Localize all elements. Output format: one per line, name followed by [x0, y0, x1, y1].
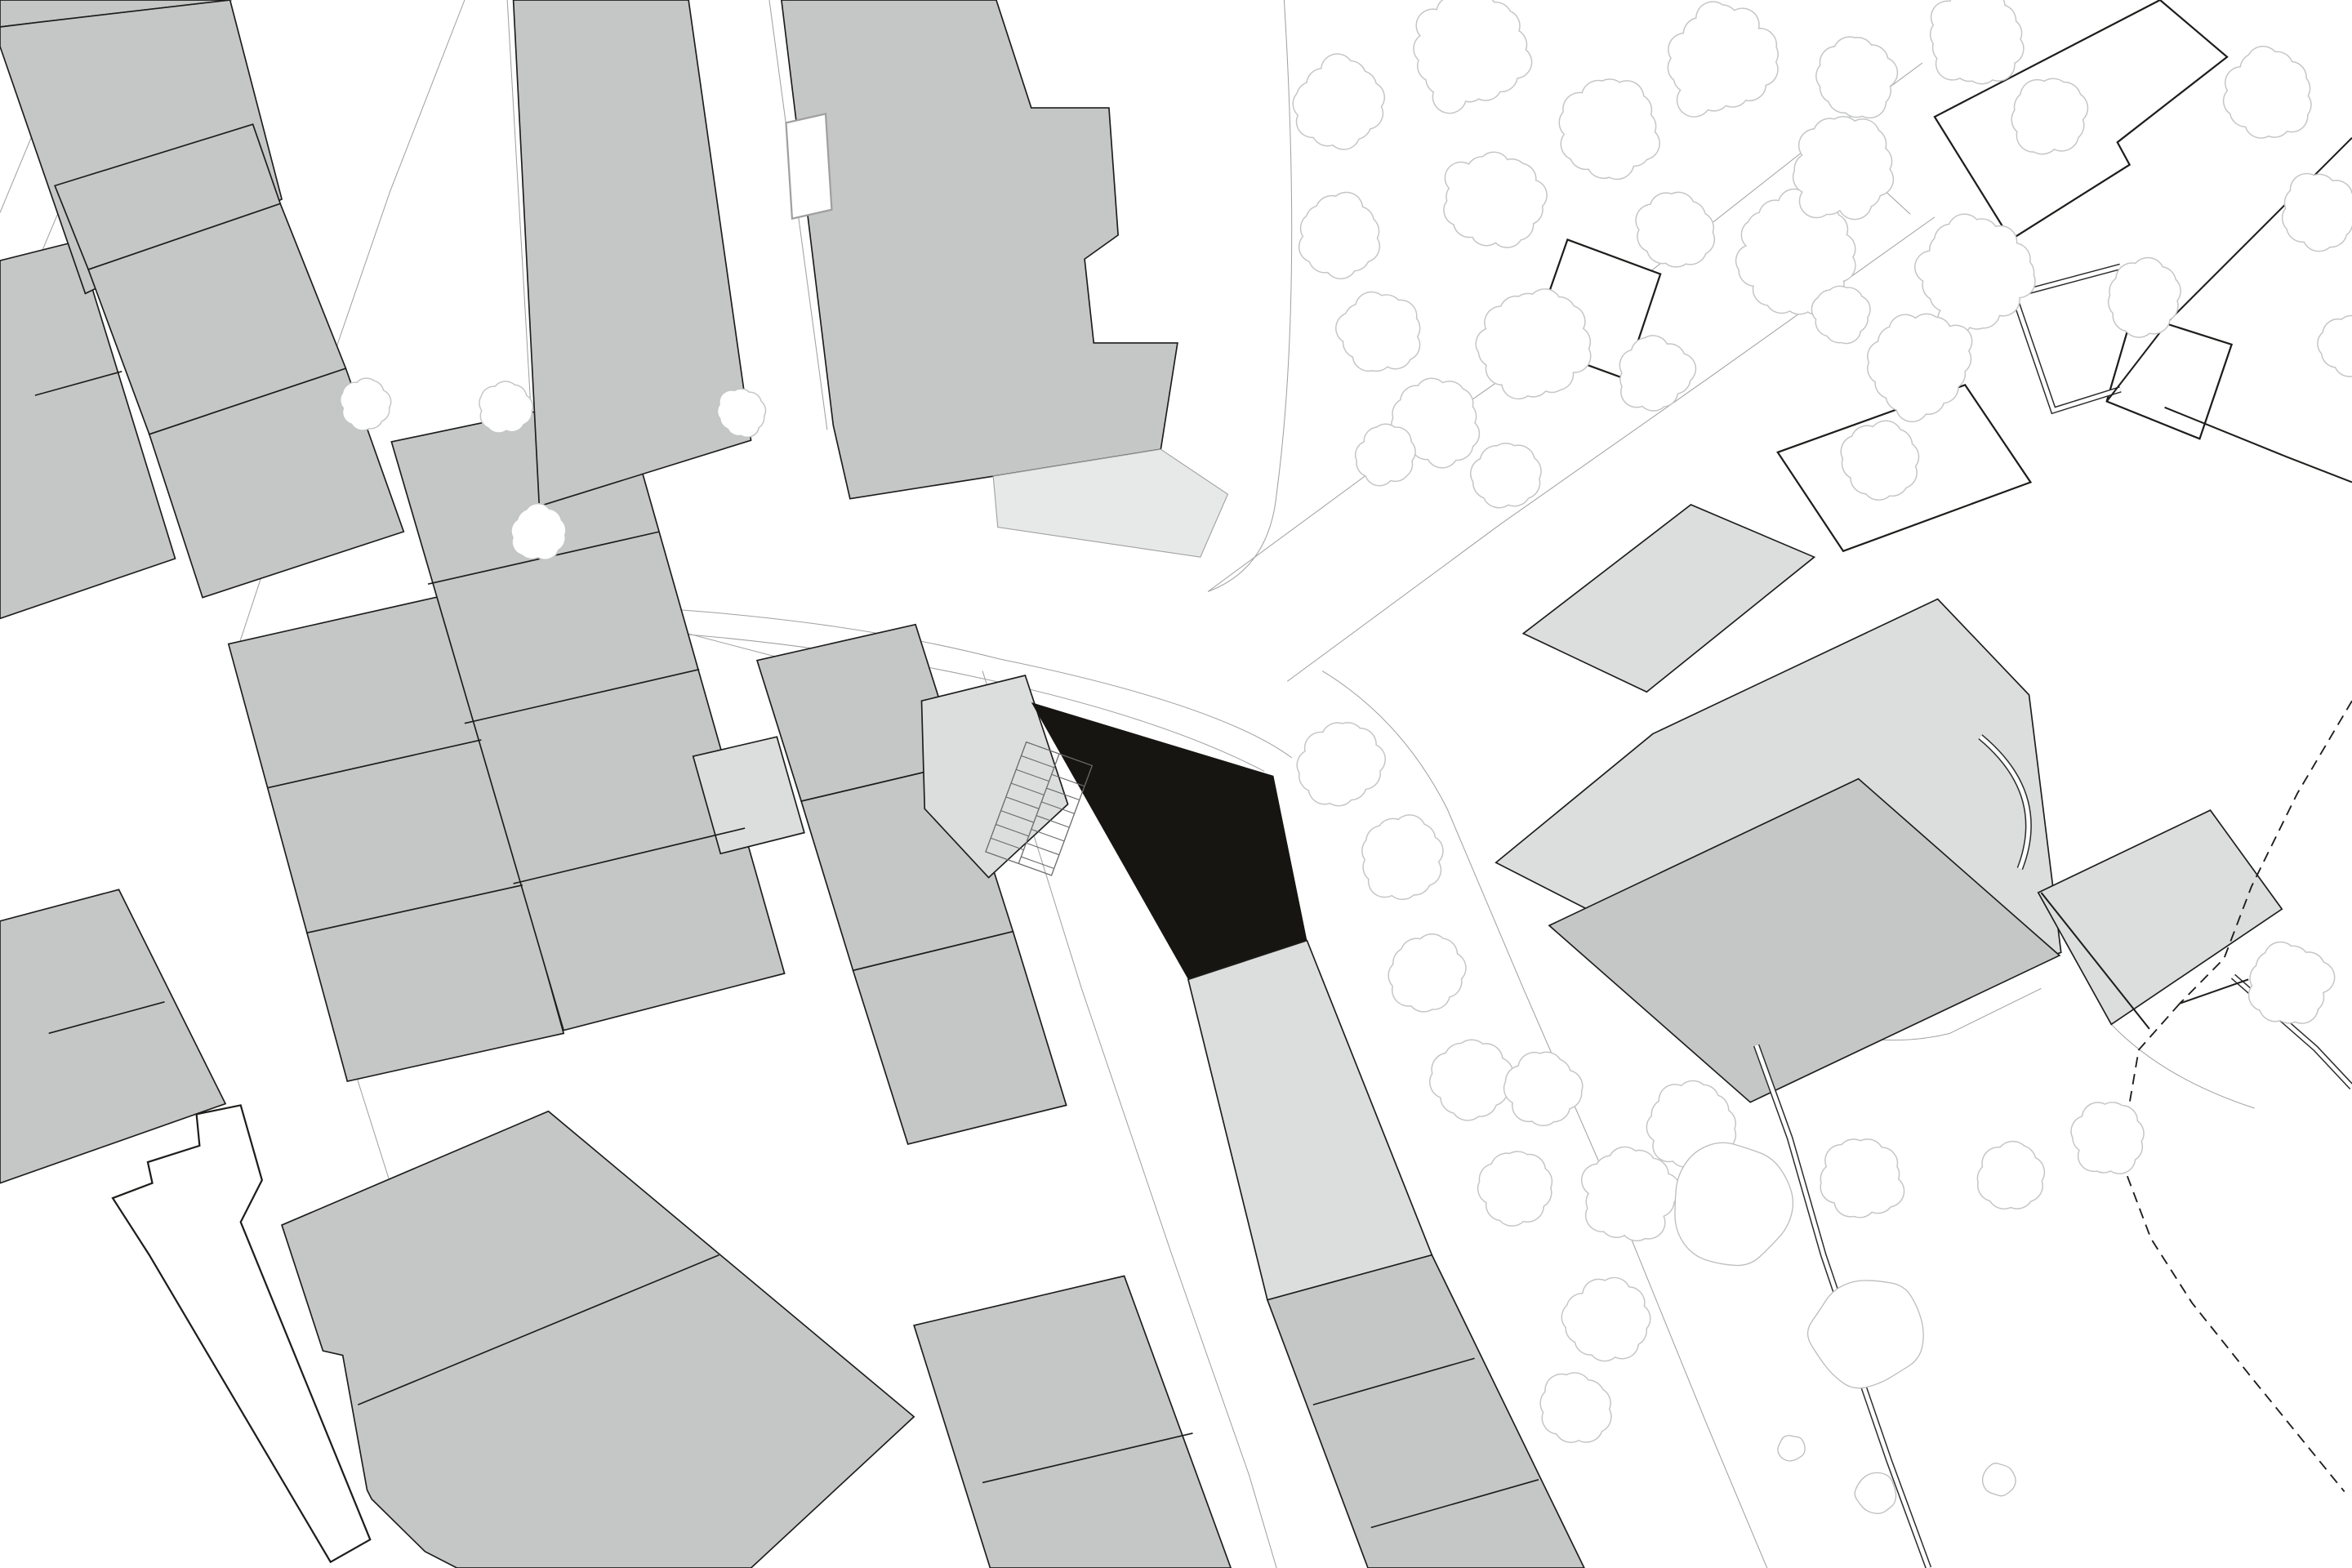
tree-canopy-icon [1504, 1052, 1583, 1125]
site-plan [0, 0, 2352, 1568]
tree-canopy-icon [2071, 1102, 2144, 1174]
tree-canopy-icon [341, 378, 391, 430]
tree-canopy-icon [1444, 152, 1547, 247]
tree-canopy-icon [1668, 2, 1778, 117]
tree-canopy-icon [1478, 1151, 1552, 1226]
site-building-black [1031, 702, 1307, 979]
tree-canopy-icon [1540, 1373, 1611, 1442]
tree-canopy-icon [1816, 37, 1898, 118]
top-building-main [782, 0, 1178, 499]
stair-tread [1031, 829, 1064, 840]
tree-canopy-icon [1414, 0, 1532, 114]
tree-canopy-icon [2283, 174, 2352, 252]
tree-canopy-icon [1299, 193, 1380, 279]
bottom-center-building [914, 1276, 1231, 1568]
tree-canopy-icon [1430, 1040, 1513, 1120]
top-building-west [514, 0, 751, 506]
tree-canopy-icon [2011, 78, 2087, 154]
stair-tread [1027, 843, 1059, 854]
tree-canopy-icon [1471, 443, 1541, 508]
tree-canopy-icon [1977, 1142, 2044, 1209]
layer-dashed [2123, 701, 2352, 1491]
property-line-dashed-1 [2123, 1004, 2344, 1492]
tree-canopy-icon [1820, 1139, 1904, 1218]
shrub-icon [1808, 1281, 1924, 1388]
south-row-gray [1267, 1255, 1584, 1568]
tree-canopy-icon [1362, 815, 1443, 899]
tree-canopy-icon [2249, 942, 2335, 1023]
tree-canopy-icon [1476, 289, 1590, 399]
boundary-link [2180, 979, 2248, 1003]
tree-canopy-icon [1388, 934, 1466, 1012]
shrub-icon [1855, 1472, 1895, 1513]
shrub-icon [1778, 1436, 1805, 1461]
complex-light-east [2038, 810, 2282, 1024]
tree-canopy-icon [1559, 79, 1659, 180]
tree-canopy-icon [1297, 723, 1385, 806]
complex-light-north [1523, 505, 1814, 692]
shrub-icon [1983, 1463, 2016, 1496]
tree-canopy-icon [2224, 47, 2311, 138]
tree-canopy-icon [1336, 292, 1420, 372]
shrub-icon [1675, 1143, 1793, 1265]
rooftop-box [786, 114, 831, 218]
boundary-from-kiosk [2165, 408, 2352, 483]
left-strip-lower [0, 889, 225, 1183]
block4-c [853, 932, 1067, 1144]
tree-canopy-icon [1811, 286, 1870, 343]
tree-canopy-icon [1793, 117, 1894, 220]
site-plan-page [0, 0, 2352, 1568]
tree-canopy-icon [2318, 315, 2352, 376]
path-southeast [2111, 1024, 2254, 1108]
tree-canopy-icon [1931, 0, 2024, 84]
tree-canopy-icon [1636, 192, 1714, 266]
tree-canopy-icon [1561, 1278, 1650, 1361]
tree-canopy-icon [1293, 54, 1384, 149]
bottom-big-building [282, 1111, 914, 1568]
